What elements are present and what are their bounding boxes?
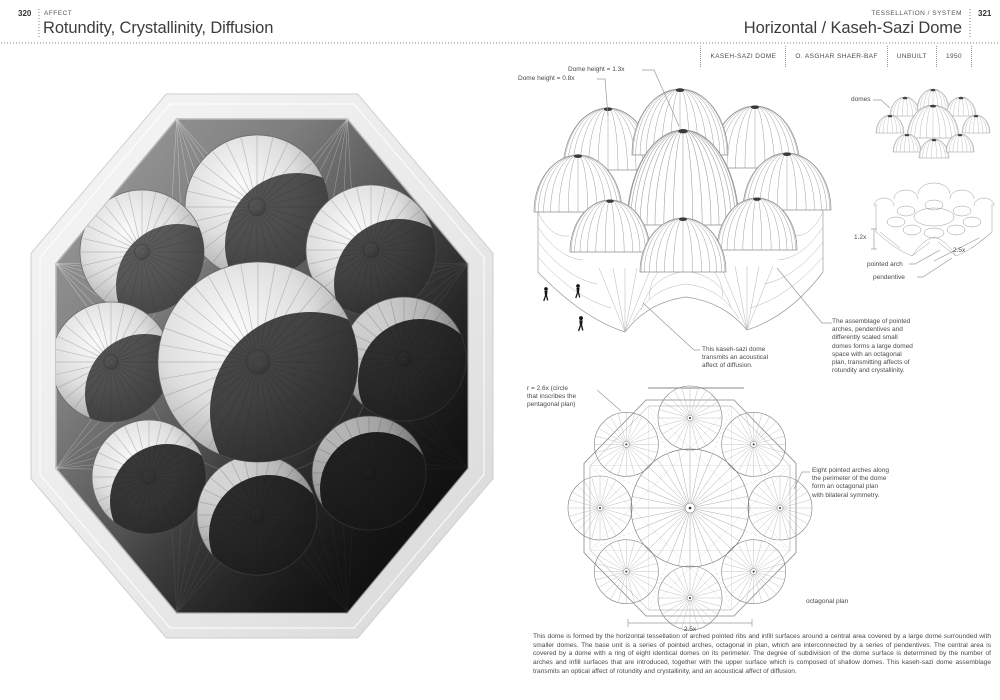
body-paragraph: This dome is formed by the horizontal te… [533,633,991,677]
left-eyebrow: AFFECT [44,10,72,17]
label-pendentive: pendentive [873,274,905,282]
right-header-divider [969,8,971,39]
note-assemblage: The assemblage of pointed arches, penden… [832,318,913,375]
right-page-number: 321 [978,9,991,18]
label-dim-1-2x: 1.2x [854,234,866,242]
left-page-number: 320 [18,9,31,18]
label-dome-height-large: Dome height = 1.3x [568,66,625,74]
label-dim-2-5x-side: 2.5x [953,247,965,255]
note-eight-arches: Eight pointed arches along the perimeter… [812,467,889,500]
caption-acoustic-affect: This kaseh-sazi dome transmits an acoust… [702,346,768,371]
label-pointed-arch: pointed arch [867,261,903,269]
left-page-title: Rotundity, Crystallinity, Diffusion [43,19,273,38]
label-octagonal-plan: octagonal plan [806,598,848,606]
right-page-title: Horizontal / Kaseh-Sazi Dome [744,19,962,38]
label-domes: domes [851,96,871,104]
left-header-divider [38,8,40,39]
header-dotted-rule [0,42,1000,44]
dome-interior-photo [25,85,500,650]
label-dome-height-small: Dome height = 0.8x [518,75,575,83]
label-inscribing-circle: r = 2.6x (circle that inscribes the pent… [527,385,576,410]
right-eyebrow: TESSELLATION / SYSTEM [871,10,962,17]
book-spread: 320 AFFECT Rotundity, Crystallinity, Dif… [0,0,1000,700]
